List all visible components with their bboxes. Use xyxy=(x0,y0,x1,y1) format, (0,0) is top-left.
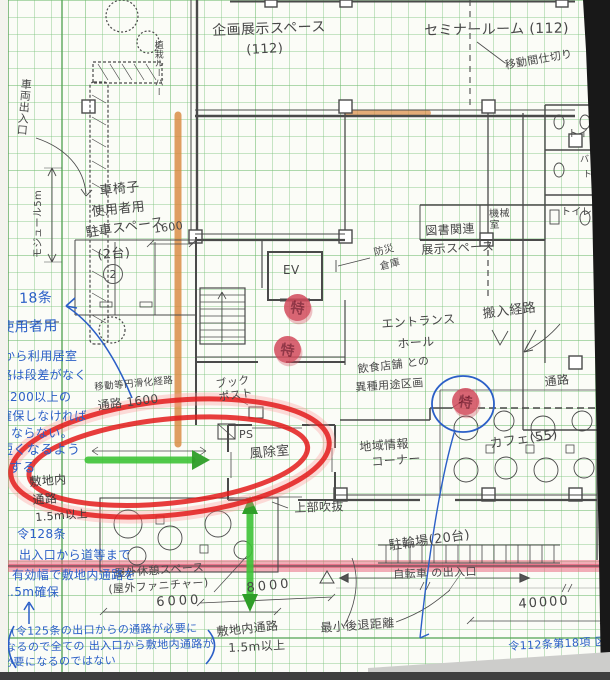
note-blue-l6: 確保しなければ xyxy=(0,410,87,423)
paper-left-margin xyxy=(0,0,8,672)
label-planned-exhibition-capacity: (112) xyxy=(246,42,284,58)
note-article128-l2: 出入口から道等まで xyxy=(19,549,131,562)
label-site-path-left-2: 通路 xyxy=(32,492,58,507)
label-toilet-mid: トイレ xyxy=(561,208,592,219)
label-planting-louver: 植栽ルーバー xyxy=(152,40,162,96)
label-toilet-bf-1: バリ xyxy=(580,156,599,166)
label-library-exhibit-1: 図書関連 xyxy=(425,222,475,238)
note-blue-l5: 1200以上の xyxy=(2,391,71,404)
note-blue-l7: ならない。 xyxy=(11,427,73,440)
label-toilet-bf-2: トイ xyxy=(583,171,602,181)
note-blue-l9: する xyxy=(9,462,36,476)
note-blue-l3: から利用居室 xyxy=(3,350,77,363)
label-wheelchair-parking-4: (2台) xyxy=(97,247,131,263)
label-toilet-top: トイレ xyxy=(568,130,599,141)
label-module-5m: モジュール5m xyxy=(34,190,45,258)
note-blue-l2: 使用者用 xyxy=(0,319,58,336)
note-article128-l3: 有効幅で敷地内通路を xyxy=(12,569,136,582)
note-article128: 令128条 xyxy=(17,528,66,541)
hand-drawn-floor-plan: 企画展示スペース (112) セミナールーム (112) 移動間仕切り 車椅子 … xyxy=(0,0,610,680)
note-blue-l8: 短くなるよう xyxy=(0,444,80,458)
green-arrow-horizontal xyxy=(88,450,210,470)
note-blue-l4: 路は段差がなく xyxy=(0,369,87,382)
label-seminar-room: セミナールーム (112) xyxy=(424,21,569,39)
blue-ink-marks xyxy=(8,298,494,668)
label-entrance-hall-2: ホール xyxy=(397,335,435,351)
note-article18: 18条 xyxy=(19,291,53,307)
label-corridor: 通路 xyxy=(544,373,570,388)
label-pipe-shaft: PS xyxy=(239,429,253,441)
label-machine-room: 機械室 xyxy=(489,209,512,231)
note-article128-l4: 1.5m確保 xyxy=(2,586,59,599)
dimension-6000: 6000 xyxy=(156,594,202,610)
grid-bubble: 2 xyxy=(103,264,123,284)
bottom-dark-bar xyxy=(0,672,610,680)
note-bottom-l3: 必要になるのではない xyxy=(2,655,116,669)
label-elevator: EV xyxy=(283,264,300,277)
label-void-above: 上部吹抜 xyxy=(294,500,344,515)
